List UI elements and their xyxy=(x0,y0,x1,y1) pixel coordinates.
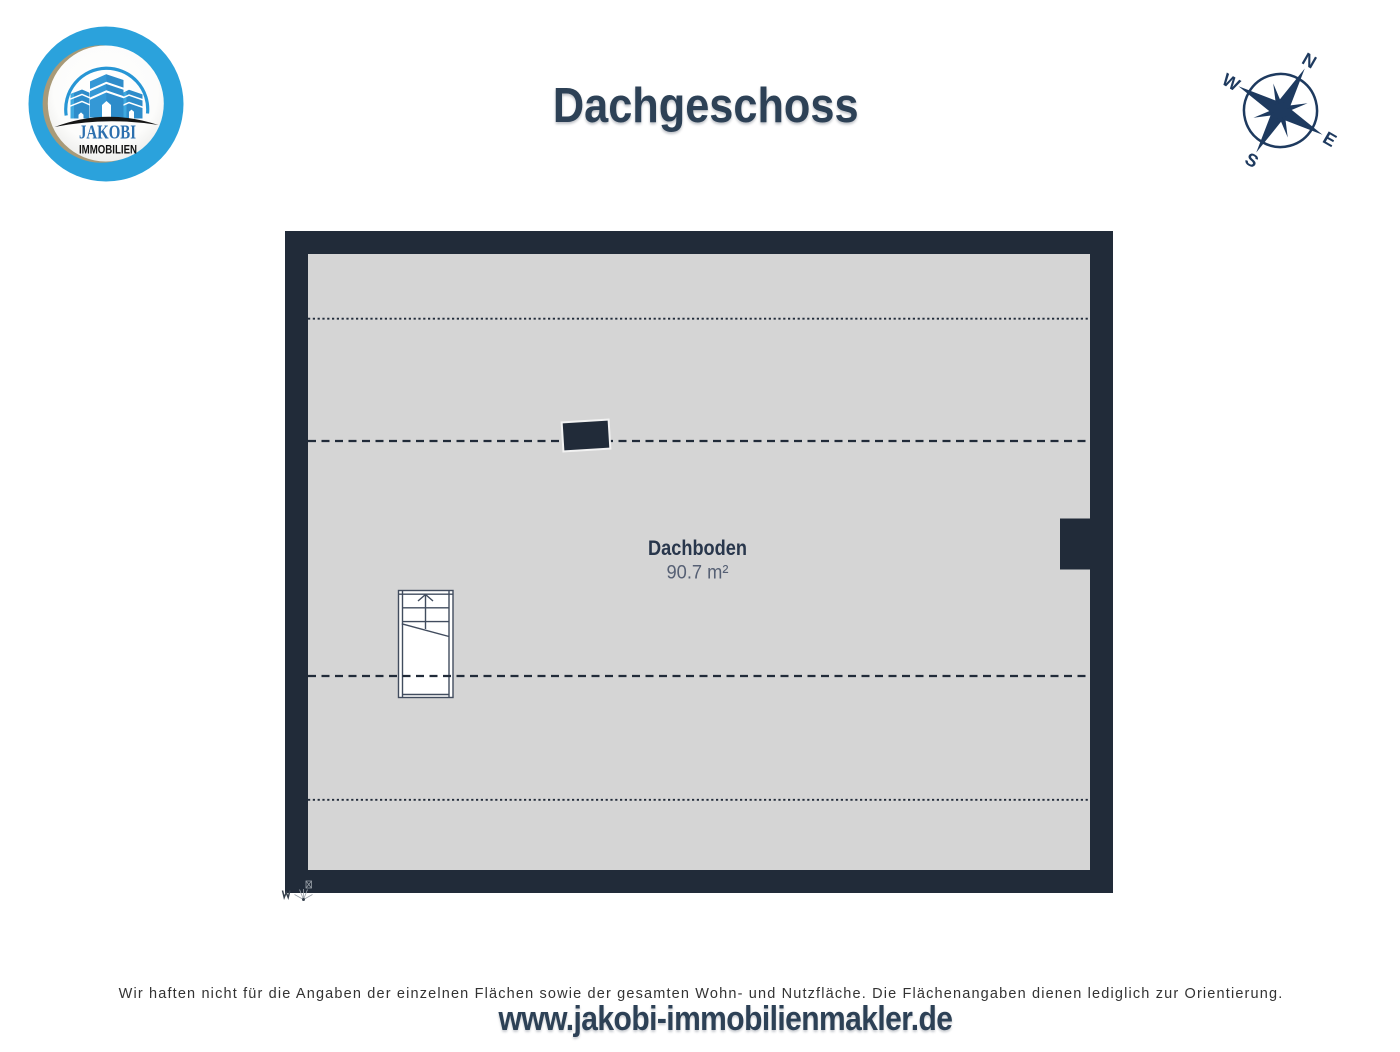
svg-text:N: N xyxy=(1299,49,1320,73)
svg-text:90.7 m²: 90.7 m² xyxy=(667,563,729,584)
svg-text:Dachboden: Dachboden xyxy=(648,536,747,560)
svg-text:S: S xyxy=(1242,149,1262,172)
svg-text:IMMOBILIEN: IMMOBILIEN xyxy=(79,143,137,157)
svg-text:W: W xyxy=(1219,69,1244,95)
svg-text:E: E xyxy=(1320,128,1340,151)
